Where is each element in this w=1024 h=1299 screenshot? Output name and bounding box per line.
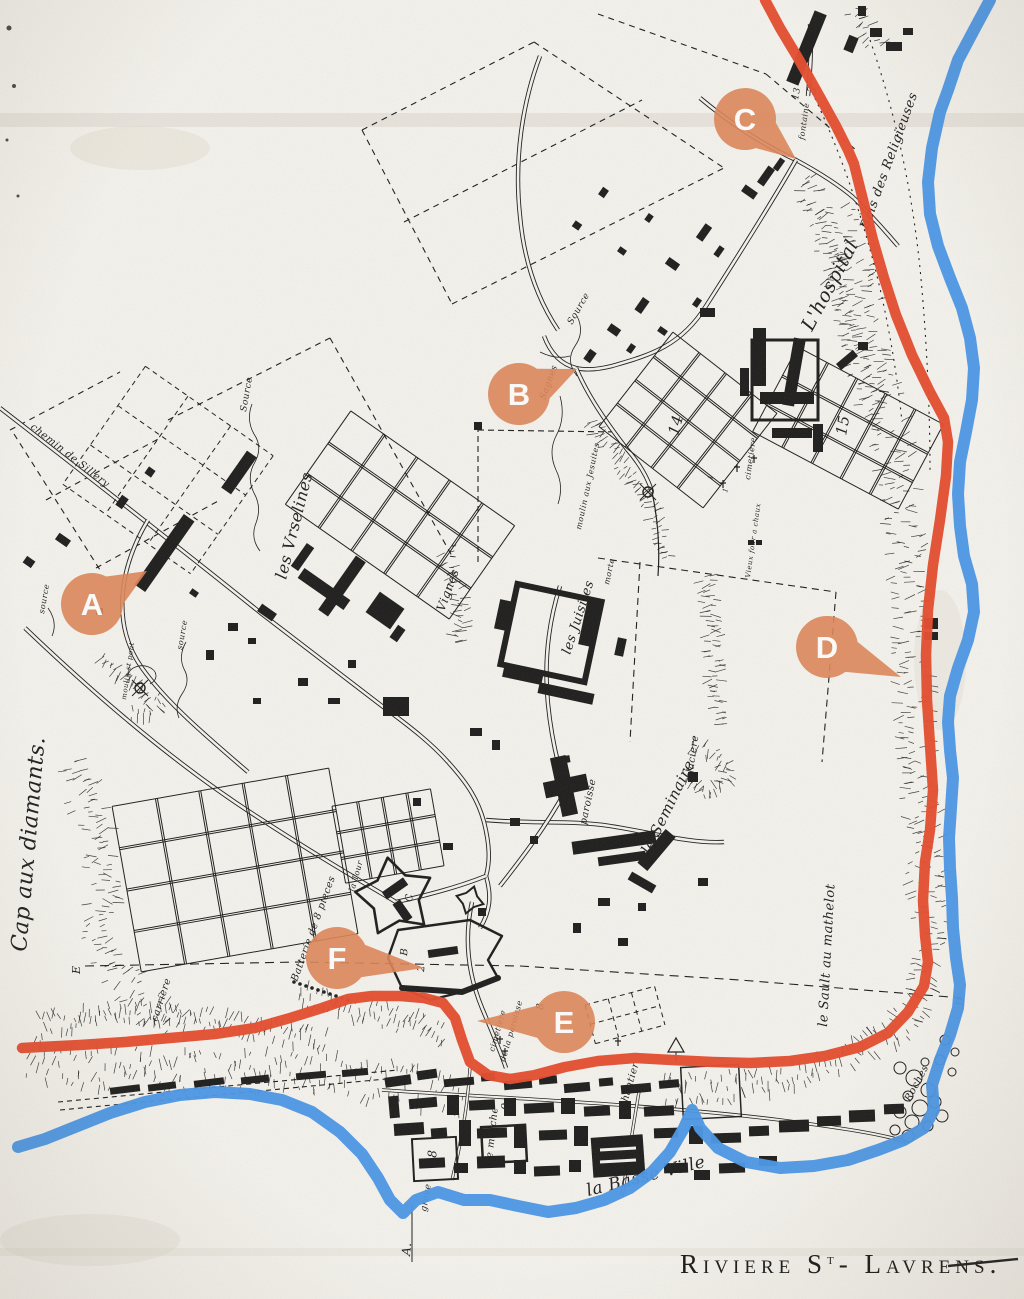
river-title: Riviere St- Lavrens. — [680, 1249, 1001, 1279]
building — [618, 938, 628, 946]
building — [328, 698, 340, 704]
building — [753, 328, 766, 386]
map-label: 13 — [791, 87, 803, 101]
building — [870, 28, 882, 37]
building — [599, 1077, 614, 1086]
marker-letter: E — [554, 1005, 575, 1040]
map-label: E — [70, 965, 83, 975]
marker-letter: B — [508, 377, 530, 412]
building — [817, 1116, 841, 1127]
building — [644, 1105, 674, 1117]
building — [474, 422, 482, 430]
building — [569, 1160, 581, 1172]
building — [206, 650, 214, 660]
building — [700, 308, 715, 317]
building — [849, 1110, 875, 1123]
map-label: C — [404, 893, 416, 902]
building — [443, 843, 453, 850]
building — [524, 1102, 554, 1114]
building — [447, 1095, 459, 1115]
building — [858, 6, 866, 16]
building — [749, 1126, 769, 1137]
marker-letter: D — [816, 630, 838, 665]
building — [413, 798, 421, 806]
map-label: 15 — [832, 414, 853, 437]
building — [454, 1163, 468, 1173]
building — [228, 623, 238, 631]
map-label: 18 — [425, 1149, 440, 1166]
building — [298, 678, 308, 686]
building — [459, 1120, 471, 1146]
building — [779, 1119, 809, 1132]
building — [539, 1130, 567, 1141]
building — [584, 1105, 610, 1116]
building — [740, 368, 749, 396]
building — [573, 923, 581, 933]
building — [253, 698, 261, 704]
marker-letter: F — [328, 941, 347, 976]
building — [561, 1098, 575, 1114]
marker-letter: A — [81, 587, 103, 622]
marker-letter: C — [734, 102, 756, 137]
building — [248, 638, 256, 644]
building — [638, 903, 646, 911]
map-label: 9 — [499, 1102, 512, 1110]
building — [886, 42, 902, 51]
building — [394, 1122, 425, 1136]
building — [698, 878, 708, 886]
building — [574, 1126, 588, 1146]
quebec-historic-map-stage: Cap aux diamants.chemin de SillerySource… — [0, 0, 1024, 1299]
building — [383, 697, 409, 716]
building — [348, 660, 356, 668]
map-label: B — [399, 947, 411, 957]
building — [470, 728, 482, 736]
building — [598, 898, 610, 906]
building — [534, 1166, 560, 1177]
map-label: A. — [399, 1242, 414, 1258]
building — [772, 428, 812, 438]
building — [530, 836, 538, 844]
building — [478, 908, 486, 916]
building — [388, 1096, 400, 1119]
building — [510, 818, 520, 826]
building — [813, 424, 823, 452]
quebec-historic-map: Cap aux diamants.chemin de SillerySource… — [0, 0, 1024, 1299]
building — [858, 342, 868, 350]
building — [492, 740, 500, 750]
building — [903, 28, 913, 35]
